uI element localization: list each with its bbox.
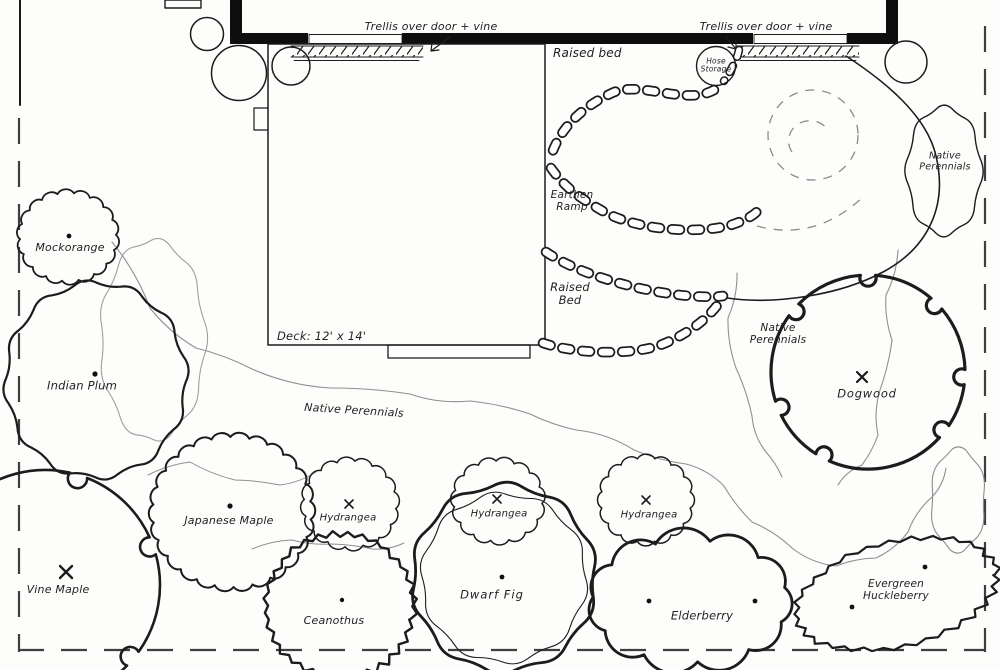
spiral-tail-dashed [757, 196, 864, 230]
deck [254, 44, 545, 358]
wall-right-post [886, 0, 898, 44]
ceanothus-label: Ceanothus [304, 615, 365, 627]
deck-outline [268, 44, 545, 345]
dwarf-fig-label: Dwarf Fig [460, 589, 524, 602]
japanese-maple-center-dot [227, 503, 232, 508]
pot-circle-1 [191, 18, 224, 51]
hydrangea-center-x-marker [493, 495, 501, 503]
dogwood-label: Dogwood [837, 388, 897, 401]
japanese-maple-label: Japanese Maple [184, 515, 273, 527]
trellis-right-hatch-fill [737, 46, 859, 57]
door-left [309, 35, 402, 44]
ceanothus-center-dot [340, 598, 344, 602]
pot-circle-4 [885, 41, 927, 83]
deck-label: Deck: 12' x 14' [277, 330, 366, 343]
vine-maple-label: Vine Maple [27, 584, 90, 596]
trellis-right-label: Trellis over door + vine [700, 21, 833, 33]
dogwood-x-marker [857, 372, 867, 382]
raised-bed-lower-label: Raised Bed [546, 281, 594, 307]
canopy-elderberry [589, 528, 792, 670]
huckleberry-center-dot-2 [850, 605, 855, 610]
indian-plum-label: Indian Plum [47, 380, 117, 393]
stones-upper-curve [551, 89, 714, 156]
bed-line-left-of-dogwood [728, 273, 782, 477]
vine-maple-x-marker [60, 566, 72, 578]
native-perennials-topright-label: Native Perennials [914, 151, 976, 172]
earthen-ramp-label: Earthen Ramp [545, 190, 599, 214]
hydrangea-center-label: Hydrangea [471, 508, 528, 519]
ghost-canopy-left [101, 238, 208, 441]
elderberry-label: Elderberry [671, 610, 733, 623]
garden-plan-drawing [0, 0, 1000, 670]
wall-planter-box [165, 0, 201, 8]
canopy-vine-maple [0, 470, 160, 670]
curved-bed-edge [727, 56, 939, 300]
elderberry-center-dot-2 [753, 599, 758, 604]
canopy-hydrangea-center [451, 457, 546, 545]
elderberry-center-dot-1 [647, 599, 652, 604]
indian-plum-center-dot [92, 371, 97, 376]
spiral-outer-dashed [768, 90, 858, 180]
hydrangea-right-x-marker [642, 496, 650, 504]
wall-segment-1 [242, 33, 308, 44]
native-perennials-blob-right [932, 447, 985, 553]
pot-circle-2 [212, 46, 267, 101]
bed-squiggle-2 [148, 462, 316, 485]
deck-side-notch [254, 108, 268, 130]
trellis-left-label: Trellis over door + vine [365, 21, 498, 33]
evergreen-huckleberry-label: Evergreen Huckleberry [854, 579, 938, 603]
wall-segment-2 [402, 33, 753, 44]
hose-storage-label: Hose Storage [697, 58, 735, 75]
raised-bed-upper-label: Raised bed [553, 47, 622, 61]
spiral-path-marks [757, 90, 864, 230]
door-right [754, 35, 847, 44]
trellis-left-hatch-fill [291, 46, 423, 57]
huckleberry-center-dot-1 [923, 565, 928, 570]
hydrangea-left-label: Hydrangea [320, 512, 377, 523]
canopy-japanese-maple [149, 433, 315, 591]
wall-left-post [230, 0, 242, 44]
hydrangea-left-x-marker [345, 500, 353, 508]
mockorange-center-dot [67, 234, 72, 239]
dwarf-fig-center-dot [500, 575, 505, 580]
plant-markers [60, 234, 927, 610]
deck-step [388, 345, 530, 358]
garden-plan: Trellis over door + vine Trellis over do… [0, 0, 1000, 670]
hydrangea-right-label: Hydrangea [621, 509, 678, 520]
native-perennials-center-label: Native Perennials [745, 323, 811, 347]
spiral-inner-dashed [789, 121, 828, 152]
mockorange-label: Mockorange [35, 242, 104, 254]
